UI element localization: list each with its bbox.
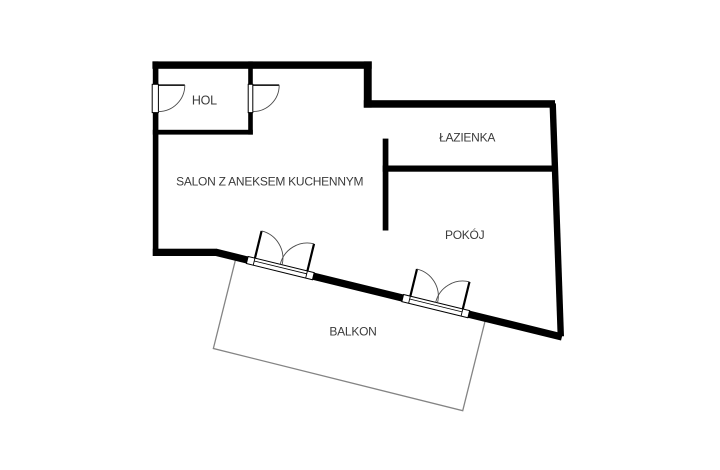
svg-text:BALKON: BALKON [329,325,376,339]
svg-text:HOL: HOL [192,94,217,108]
svg-text:ŁAZIENKA: ŁAZIENKA [439,131,495,145]
svg-text:POKÓJ: POKÓJ [445,227,485,242]
svg-text:SALON Z ANEKSEM KUCHENNYM: SALON Z ANEKSEM KUCHENNYM [176,174,363,188]
